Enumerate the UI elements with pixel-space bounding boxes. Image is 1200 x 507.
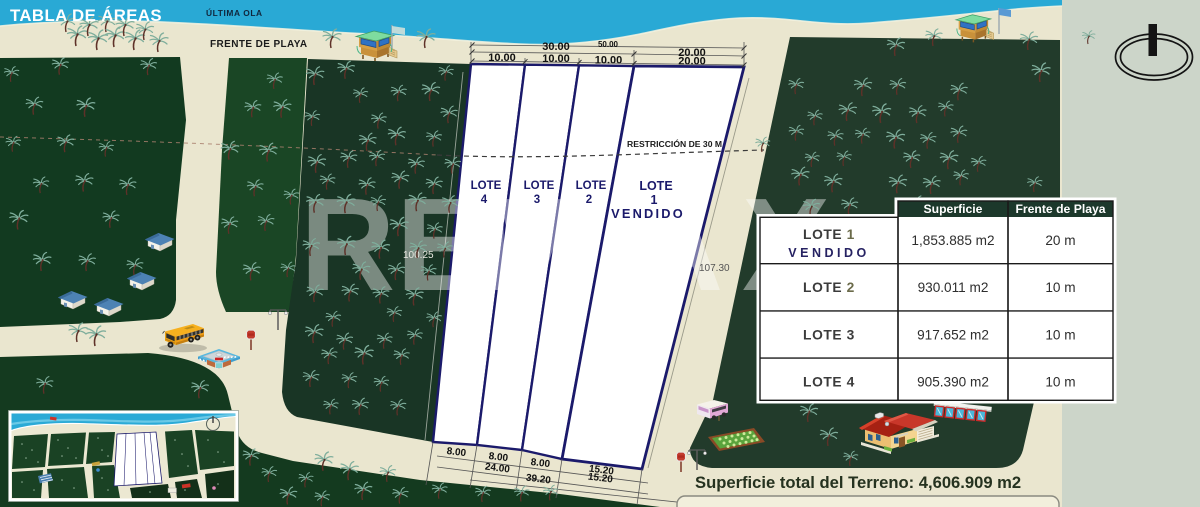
svg-text:LOTE: LOTE <box>576 180 607 192</box>
svg-text:10.00: 10.00 <box>595 55 623 67</box>
svg-text:3: 3 <box>534 194 540 206</box>
svg-text:50.00: 50.00 <box>598 40 619 49</box>
svg-text:917.652 m2: 917.652 m2 <box>917 328 989 343</box>
svg-text:10.00: 10.00 <box>542 53 570 65</box>
svg-text:10.00: 10.00 <box>488 52 516 64</box>
svg-text:ÚLTIMA OLA: ÚLTIMA OLA <box>206 7 263 18</box>
svg-text:1: 1 <box>651 193 658 207</box>
svg-text:LOTE: LOTE <box>524 180 555 192</box>
svg-text:LOTE 3: LOTE 3 <box>803 328 855 343</box>
svg-text:LOTE 2: LOTE 2 <box>803 280 855 295</box>
svg-text:TABLA DE ÁREAS: TABLA DE ÁREAS <box>10 6 162 25</box>
svg-text:10 m: 10 m <box>1045 375 1075 390</box>
svg-text:FRENTE DE PLAYA: FRENTE DE PLAYA <box>210 39 308 50</box>
svg-text:100.25: 100.25 <box>403 250 434 261</box>
svg-text:20.00: 20.00 <box>678 56 706 68</box>
svg-text:Frente de Playa: Frente de Playa <box>1015 202 1105 216</box>
svg-text:A: A <box>628 171 723 318</box>
svg-text:30.00: 30.00 <box>542 41 570 53</box>
svg-text:Superficie: Superficie <box>924 202 983 216</box>
svg-text:107.30: 107.30 <box>699 263 730 274</box>
svg-text:2: 2 <box>586 194 592 206</box>
svg-text:LOTE 4: LOTE 4 <box>803 375 855 390</box>
svg-text:10 m: 10 m <box>1045 280 1075 295</box>
svg-text:20 m: 20 m <box>1045 233 1075 248</box>
svg-text:RESTRICCIÓN DE 30 M: RESTRICCIÓN DE 30 M <box>627 138 722 149</box>
svg-text:LOTE: LOTE <box>639 179 672 193</box>
svg-text:Superficie total del Terreno:: Superficie total del Terreno: 4,606.909 … <box>695 473 1021 492</box>
svg-text:VENDIDO: VENDIDO <box>611 206 685 221</box>
svg-text:10 m: 10 m <box>1045 328 1075 343</box>
svg-text:LOTE 1: LOTE 1 <box>803 227 855 242</box>
svg-text:905.390 m2: 905.390 m2 <box>917 375 989 390</box>
svg-text:VENDIDO: VENDIDO <box>788 246 869 260</box>
svg-text:4: 4 <box>481 194 488 206</box>
svg-text:930.011 m2: 930.011 m2 <box>918 280 989 295</box>
svg-text:LOTE: LOTE <box>471 180 502 192</box>
svg-text:1,853.885 m2: 1,853.885 m2 <box>911 233 994 248</box>
